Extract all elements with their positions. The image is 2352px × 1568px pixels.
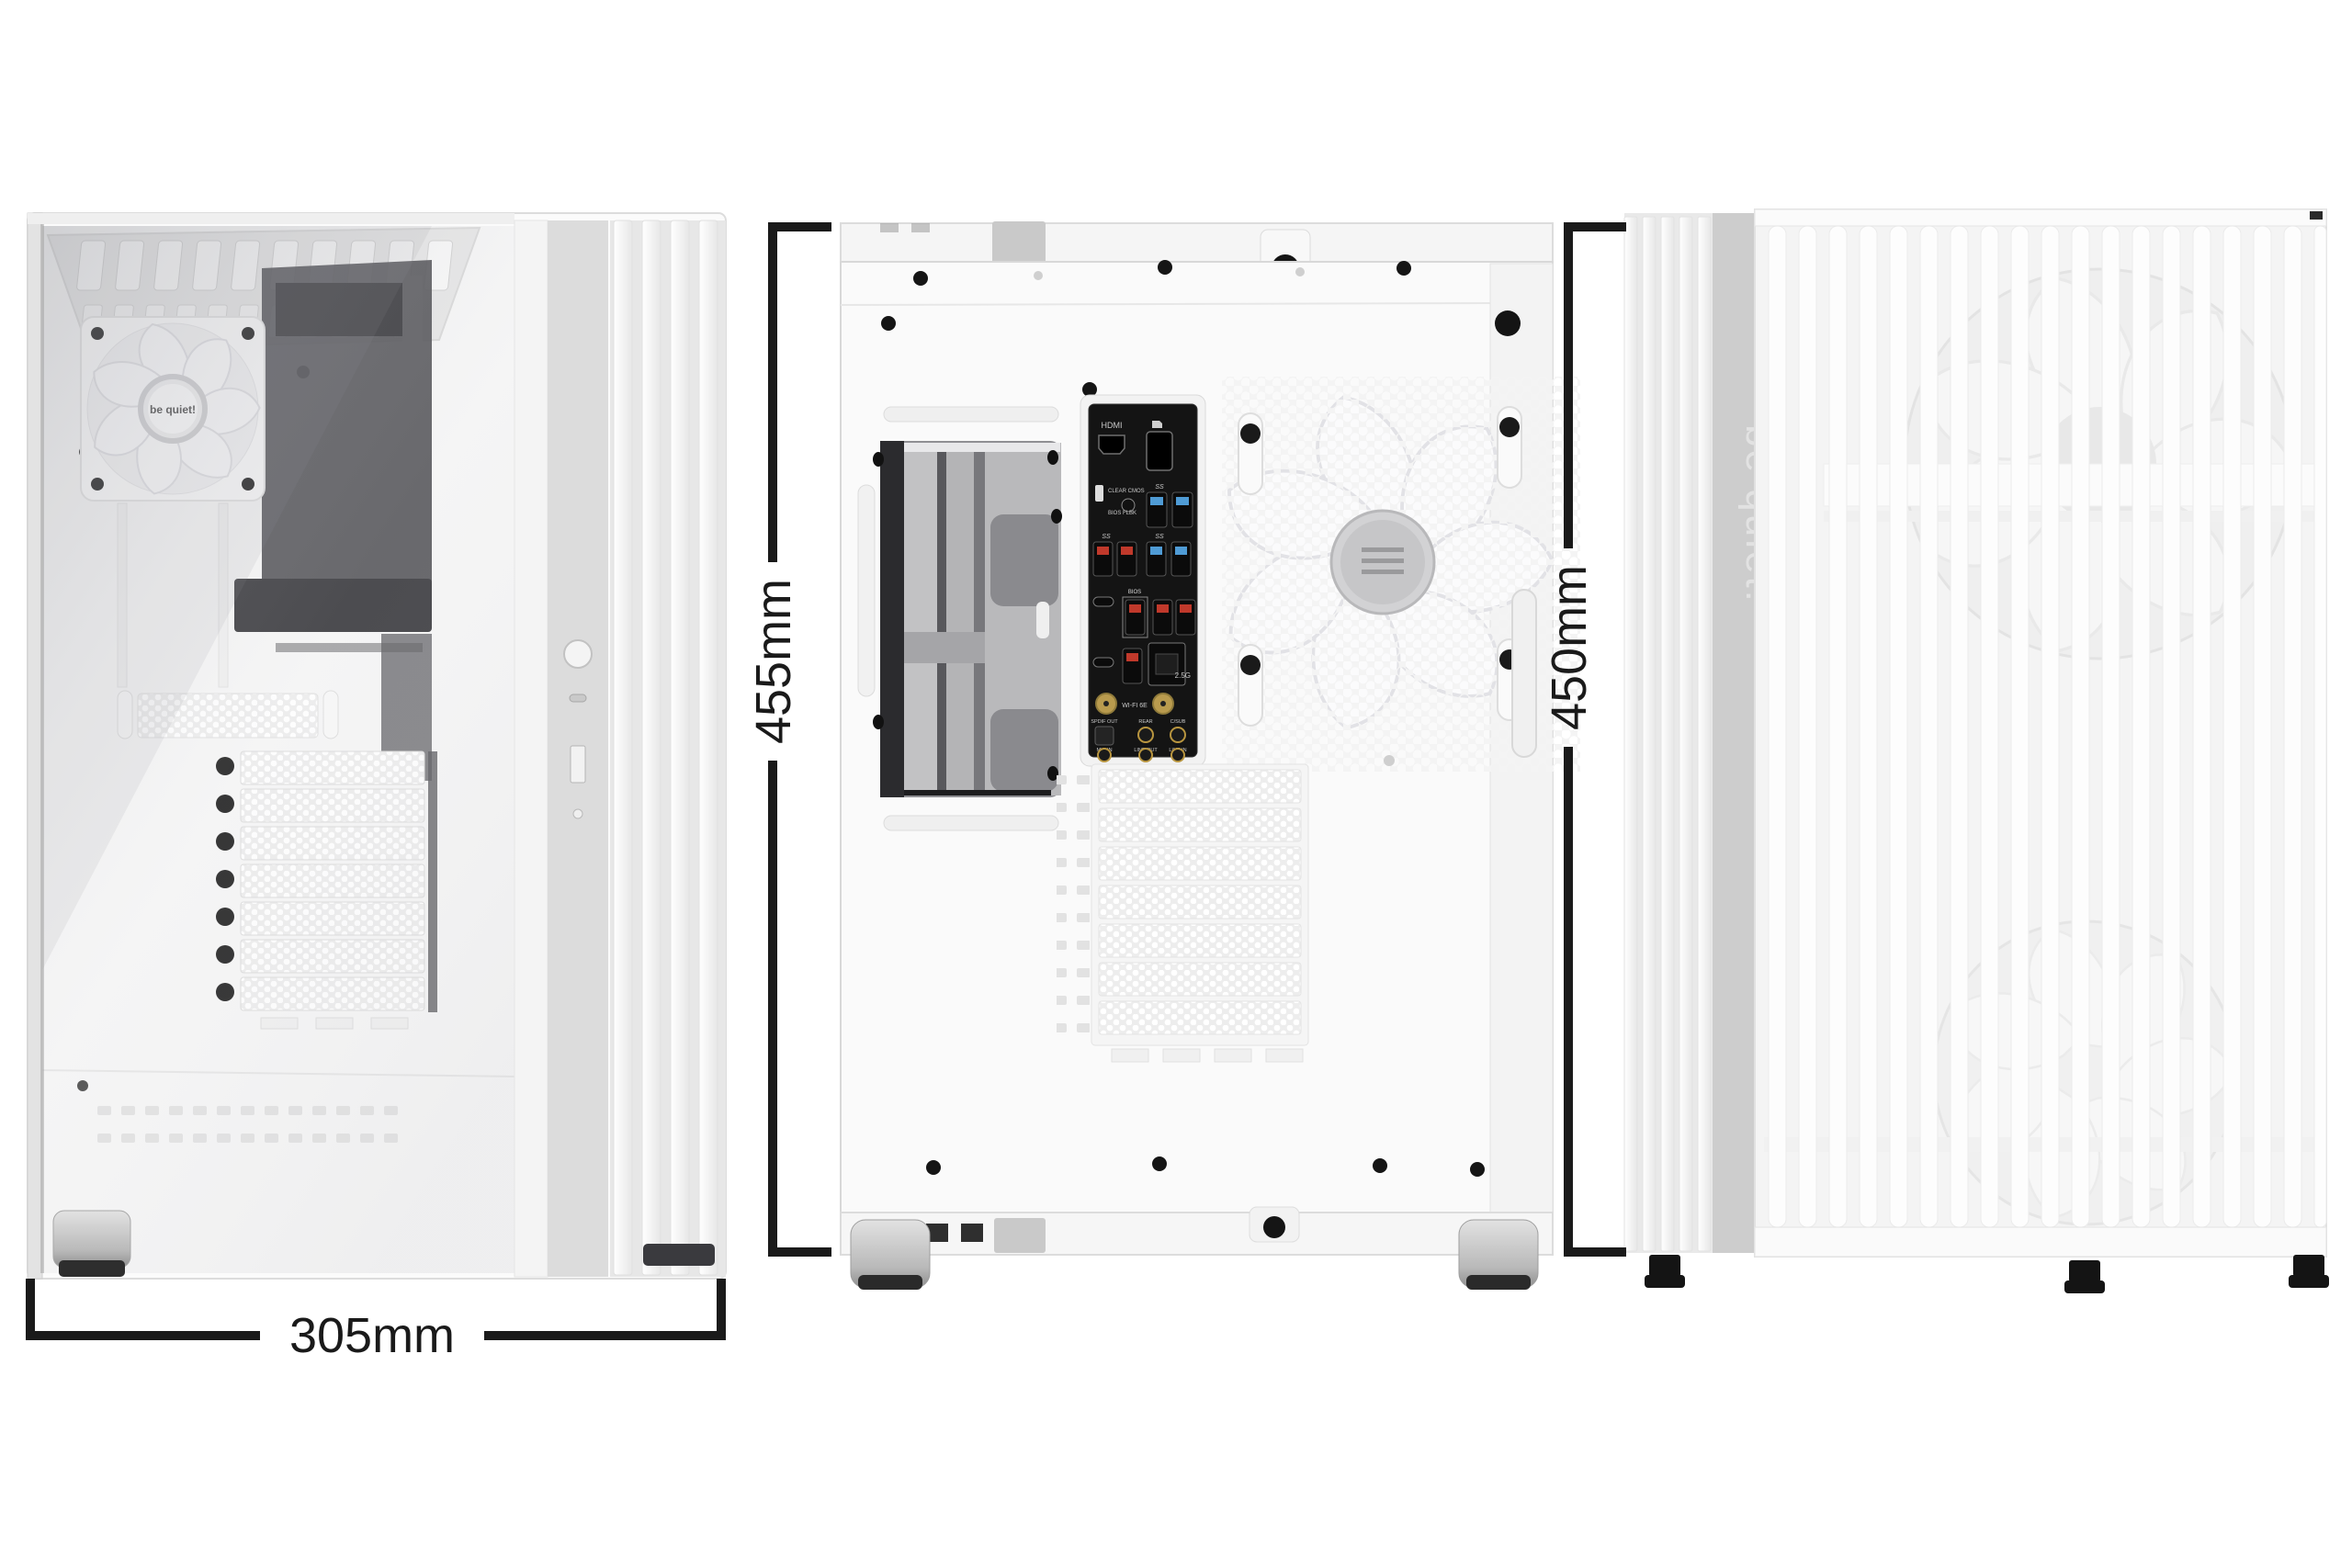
side-fins [1624, 213, 1713, 1253]
audio-jack [1171, 749, 1184, 761]
hdmi-port [1099, 435, 1125, 454]
expansion-slot-vents [1057, 764, 1308, 1062]
thumbscrew[interactable] [1495, 310, 1521, 336]
side-handle-slot[interactable] [1512, 590, 1536, 757]
front-panel-fins-side [610, 220, 726, 1277]
audio-label: SPDIF OUT [1091, 719, 1118, 725]
case-foot [1459, 1220, 1538, 1290]
motherboard-io-panel: HDMI CLEAR CMOS BIOS FLBK SS SS SS [1080, 395, 1205, 766]
usb-ss-label: SS [1102, 534, 1111, 540]
product-dimension-diagram: be quiet! [0, 0, 2352, 1568]
bios-port-label: BIOS [1128, 590, 1141, 595]
lan-speed-label: 2.5G [1175, 671, 1191, 680]
bottom-accent-latch [994, 1218, 1046, 1253]
handle-slot [858, 485, 875, 696]
hinge-pin [2310, 211, 2323, 220]
case-angled-view: be quiet! [28, 213, 726, 1279]
case-foot [643, 1244, 715, 1266]
audio-jack [1170, 728, 1185, 742]
clear-cmos-switch [1095, 485, 1103, 502]
fan-screw [1499, 417, 1520, 437]
usb-c-port [1093, 597, 1114, 606]
top-accent-latch [992, 221, 1046, 264]
displayport-port [1147, 432, 1172, 470]
tempered-glass-panel [28, 213, 514, 1279]
usb-a-port[interactable] [571, 746, 585, 783]
case-foot [53, 1211, 130, 1277]
wifi-label: WI-FI 6E [1122, 703, 1148, 709]
case-foot [851, 1220, 930, 1290]
audio-jack [1139, 749, 1152, 761]
case-three-view-illustration: be quiet! [0, 0, 2352, 1568]
case-foot [2289, 1255, 2329, 1288]
audio-jack [1098, 749, 1111, 761]
case-foot [1645, 1255, 1685, 1288]
usb-ss-label: SS [1155, 534, 1164, 540]
front-io-strip [548, 220, 608, 1277]
case-side-view: HDMI CLEAR CMOS BIOS FLBK SS SS SS [841, 221, 1580, 1290]
cable-routing-cutout [858, 407, 1062, 830]
usb-ss-label: SS [1155, 484, 1164, 491]
dimension-label-front-height: 450mm [1542, 565, 1597, 730]
dimension-label-side-height: 455mm [746, 579, 801, 744]
spdif-port [1095, 727, 1114, 745]
usb-c-port[interactable] [570, 694, 586, 702]
fan-screw [1240, 655, 1261, 675]
hdmi-label: HDMI [1102, 421, 1123, 430]
power-button[interactable] [564, 640, 592, 668]
audio-label: REAR [1138, 719, 1152, 725]
fan-screw [1240, 423, 1261, 444]
audio-jack [1138, 728, 1153, 742]
bios-flash-label: BIOS FLBK [1108, 511, 1136, 516]
dimension-label-width: 305mm [289, 1308, 455, 1363]
thumbscrew[interactable] [1263, 1216, 1285, 1238]
case-foot [2064, 1260, 2105, 1293]
bios-flash-button [1122, 499, 1135, 512]
front-slat-grille [1755, 209, 2326, 1257]
usb-c-port [1093, 658, 1114, 667]
audio-label: C/SUB [1170, 719, 1186, 725]
clear-cmos-label: CLEAR CMOS [1108, 489, 1145, 494]
case-front-view: be quiet! [1624, 209, 2329, 1293]
